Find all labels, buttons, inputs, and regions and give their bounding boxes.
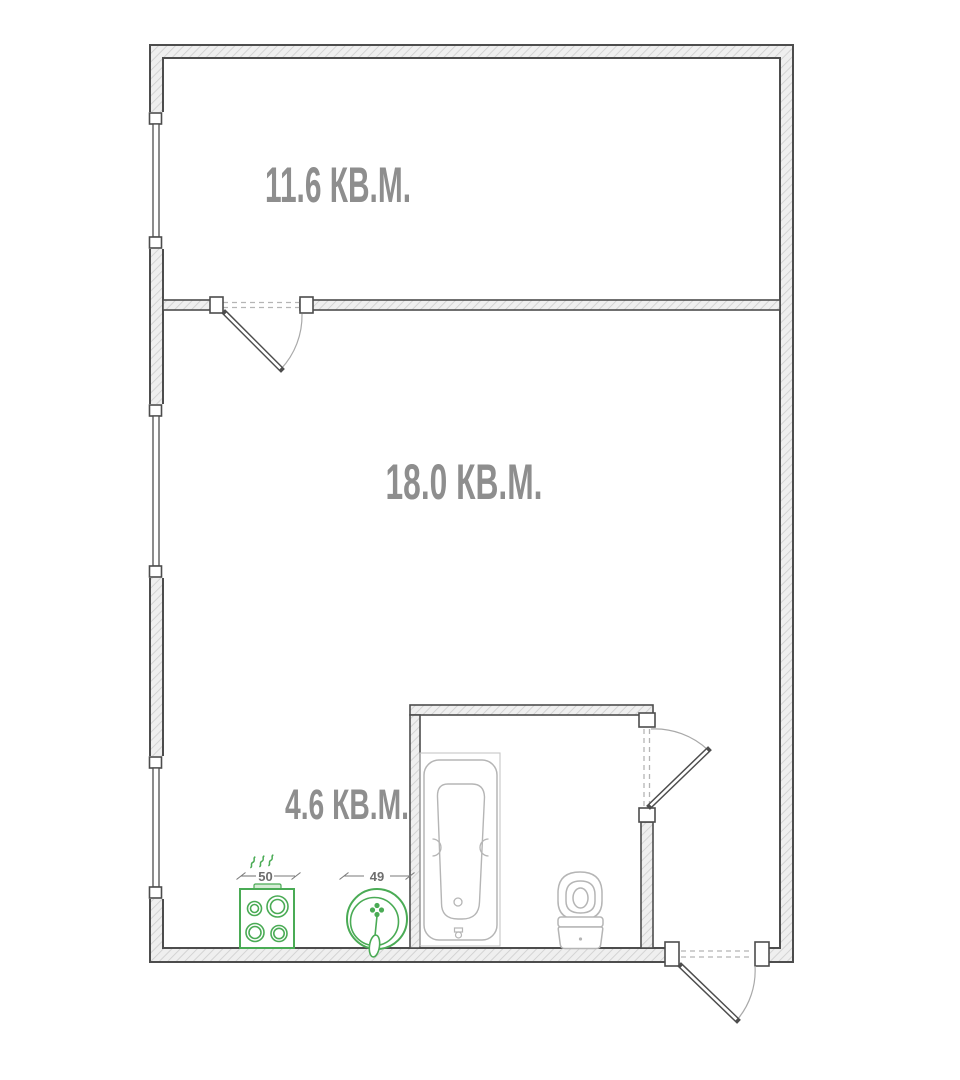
room-label-bedroom: 11.6 КВ.М. [265,157,411,213]
dimensions: 50 49 [237,869,415,884]
dimension-sink: 49 [340,869,415,884]
interior-wall-right [300,300,780,310]
wall-openings [149,112,759,964]
toilet-icon [558,872,603,949]
room-label-kitchen: 4.6 КВ.М. [285,781,409,829]
dimension-stove-value: 50 [258,869,272,884]
floor-plan: 11.6 КВ.М. 18.0 КВ.М. 4.6 КВ.М. 50 49 [0,0,960,1080]
room-label-living: 18.0 КВ.М. [386,454,543,510]
bathroom-wall-top [410,705,653,715]
door-swing-icon [639,713,708,822]
bathroom-wall-right [641,822,653,948]
dimension-sink-value: 49 [370,869,384,884]
door-swing-icon [210,297,313,369]
bathtub-icon [420,753,500,946]
floor-plan-canvas: 11.6 КВ.М. 18.0 КВ.М. 4.6 КВ.М. 50 49 [0,0,960,1080]
dimension-stove: 50 [237,869,301,884]
interior-wall-left [163,300,212,310]
room-labels: 11.6 КВ.М. 18.0 КВ.М. 4.6 КВ.М. [265,157,543,829]
bathroom-wall-left [410,715,420,948]
